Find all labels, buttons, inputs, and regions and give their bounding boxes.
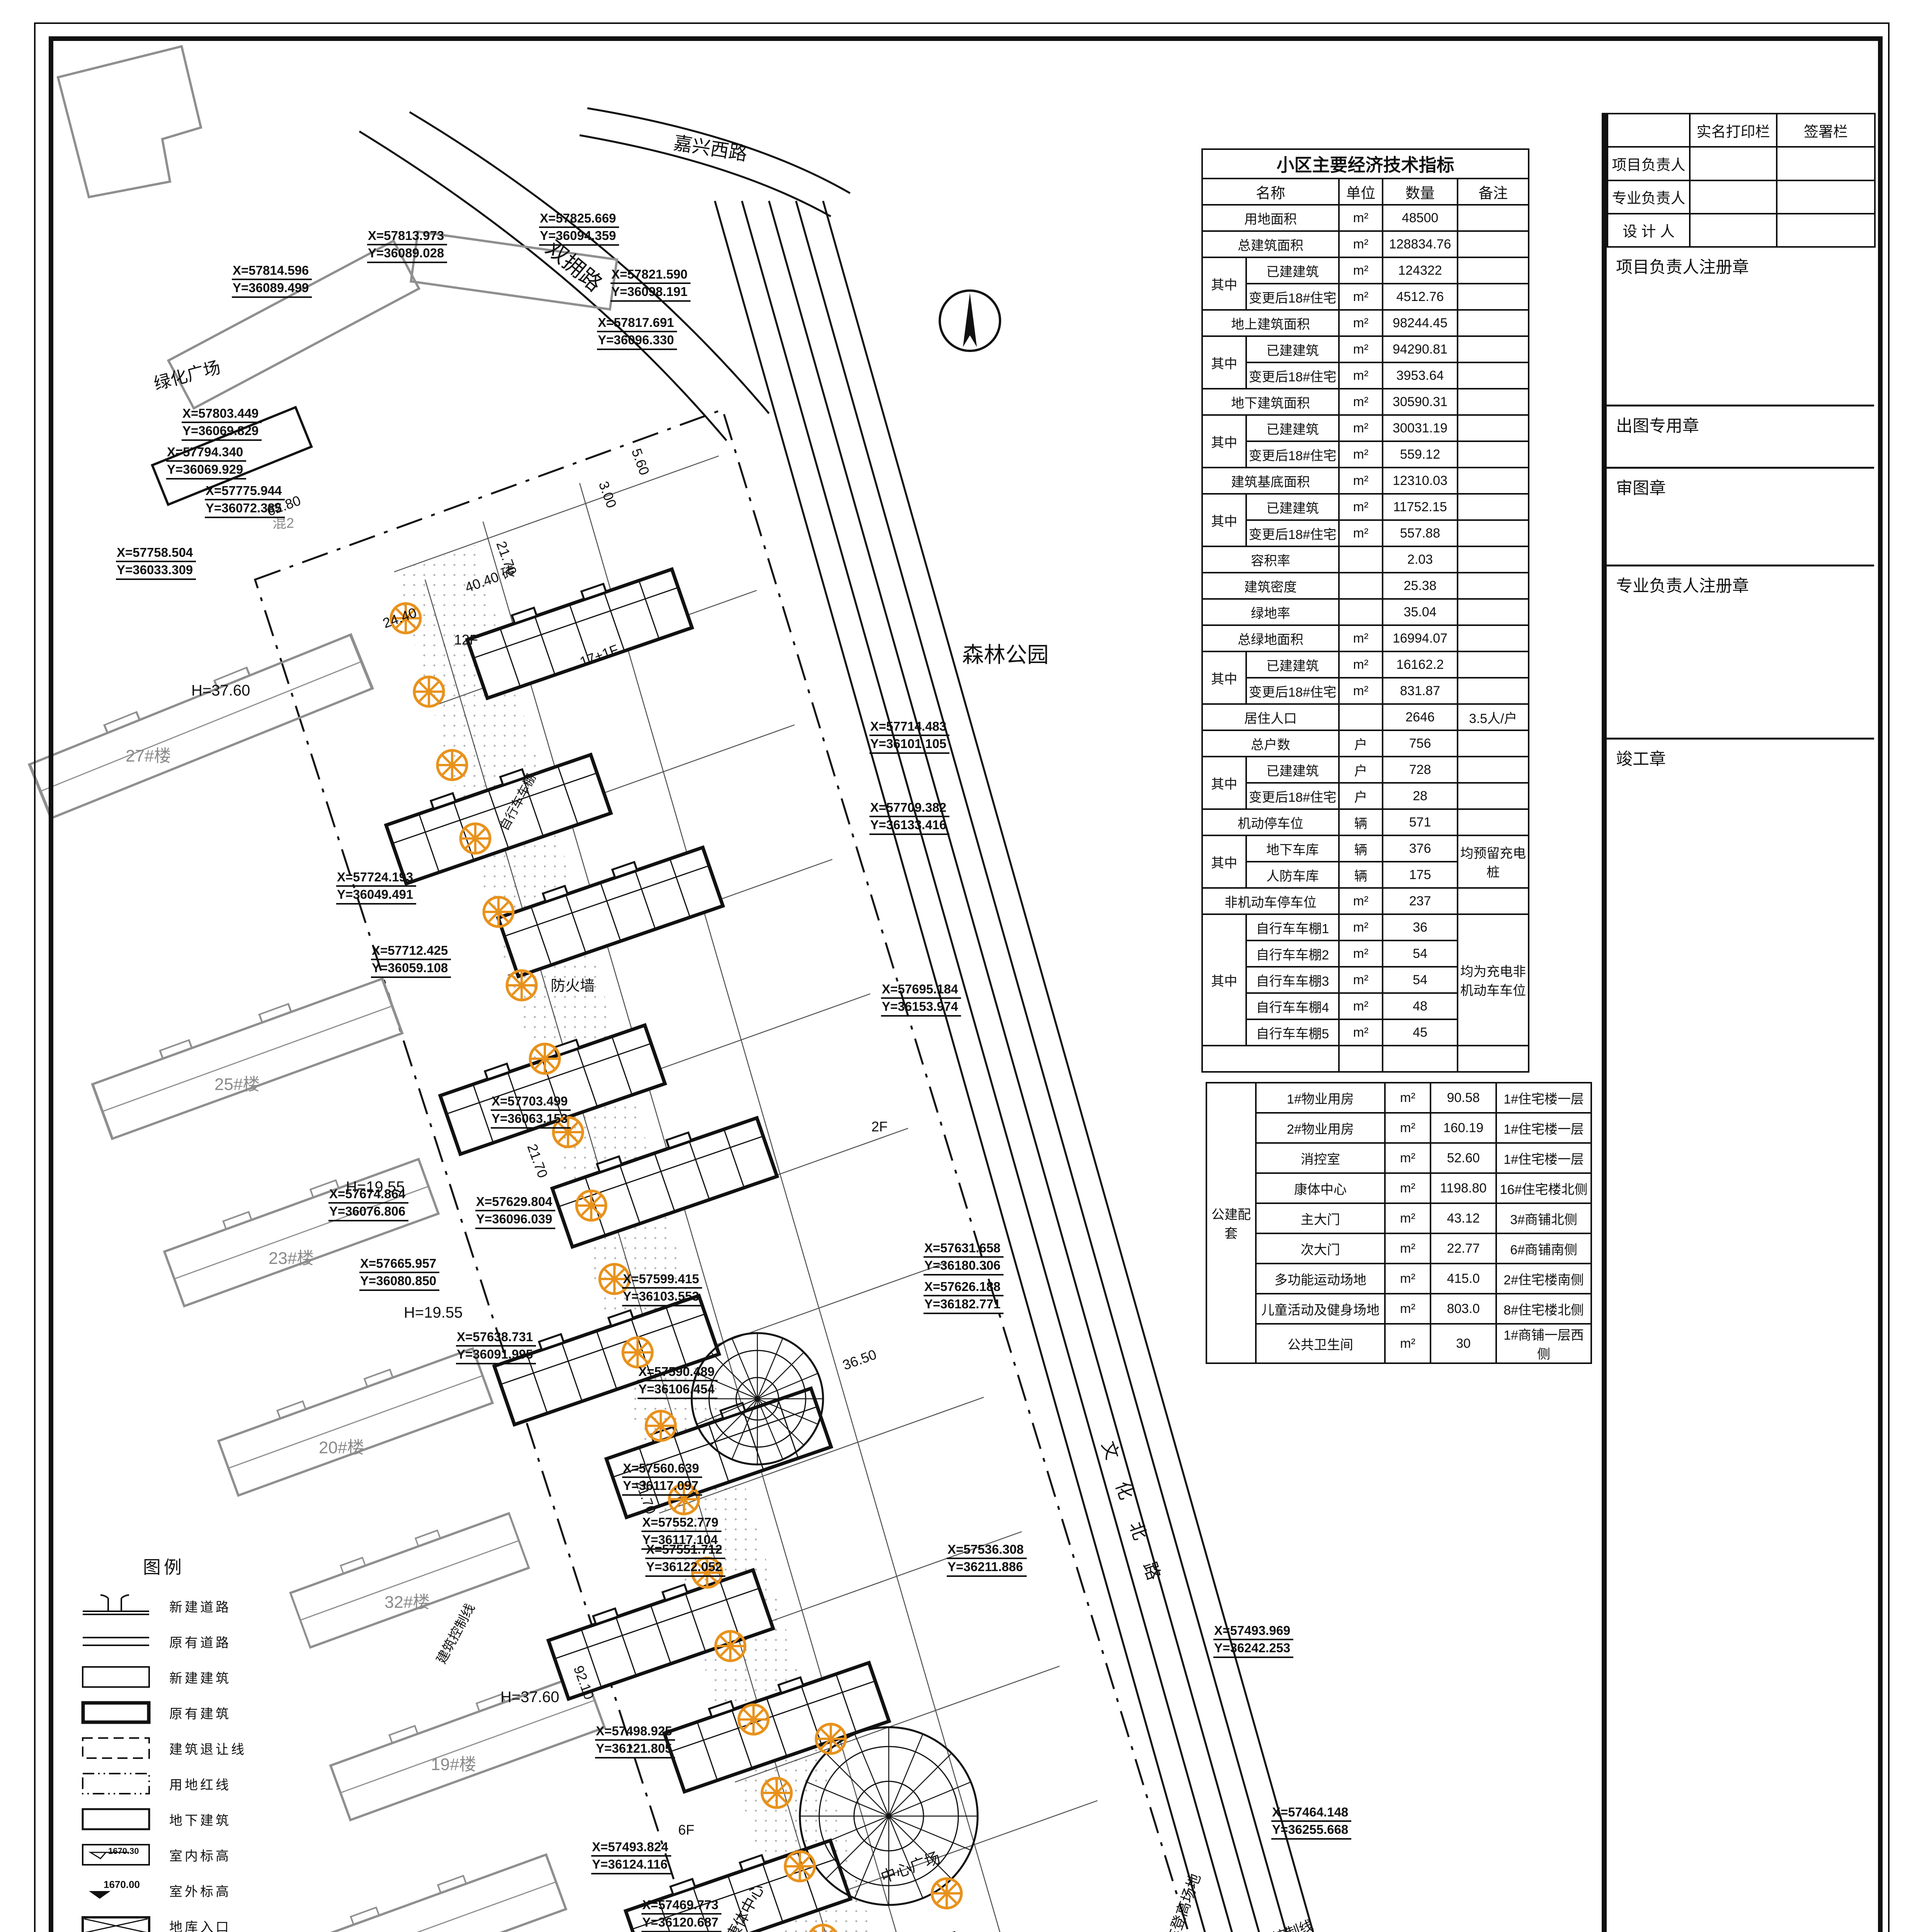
economic-table-cell: 自行车车棚5 (1246, 1019, 1339, 1046)
coordinate-y: Y=36122.052 (645, 1559, 725, 1577)
support-table-cell: 8#住宅楼北侧 (1496, 1294, 1591, 1324)
economic-table-row: 其中已建建筑m²16162.2 (1202, 651, 1529, 678)
support-table-cell: 1#物业用房 (1256, 1083, 1385, 1113)
coordinate-callout: X=57464.148Y=36255.668 (1271, 1804, 1351, 1840)
signature-table-cell: 实名打印栏 (1690, 114, 1777, 147)
economic-table-row: 变更后18#住宅m²559.12 (1202, 441, 1529, 468)
support-table-cell: 803.0 (1431, 1294, 1496, 1324)
economic-table-cell: 其中 (1202, 415, 1246, 468)
economic-table-cell: 单位 (1339, 179, 1383, 205)
economic-table-cell (1458, 625, 1529, 651)
economic-table-cell: 总户数 (1202, 730, 1339, 757)
economic-table-cell: 户 (1339, 783, 1383, 809)
coordinate-x: X=57803.449 (182, 406, 262, 423)
coordinate-x: X=57626.188 (924, 1279, 1004, 1296)
economic-table-cell (1339, 599, 1383, 625)
support-table-cell: 52.60 (1431, 1143, 1496, 1173)
economic-table-cell (1458, 1046, 1529, 1072)
support-table-cell: 43.12 (1431, 1203, 1496, 1233)
economic-table-row: 变更后18#住宅m²4512.76 (1202, 284, 1529, 310)
economic-table-cell: 已建建筑 (1246, 257, 1339, 284)
economic-table-cell: 已建建筑 (1246, 651, 1339, 678)
economic-table-row (1202, 1046, 1529, 1072)
economic-table-cell: 2646 (1383, 704, 1458, 730)
economic-table-cell: 辆 (1339, 835, 1383, 862)
economic-table-cell (1458, 651, 1529, 678)
stamp-discipline-leader: 专业负责人注册章 (1602, 566, 1874, 740)
coordinate-y: Y=36101.105 (869, 736, 949, 753)
economic-table-cell (1458, 284, 1529, 310)
coordinate-callout: X=57813.973Y=36089.028 (367, 228, 447, 263)
economic-table-cell: m² (1339, 651, 1383, 678)
new-building-icon (77, 1665, 155, 1689)
coordinate-y: Y=36069.829 (182, 423, 262, 440)
economic-table-cell: 建筑基底面积 (1202, 468, 1339, 494)
legend-item-old-road: 原有道路 (77, 1624, 294, 1659)
coordinate-y: Y=36072.385 (205, 500, 285, 518)
legend-item-setback-line: 建筑退让线 (77, 1730, 294, 1766)
economic-table-cell: 2.03 (1383, 546, 1458, 573)
economic-table-cell (1458, 730, 1529, 757)
economic-table-cell: m² (1339, 284, 1383, 310)
support-table-cell: 儿童活动及健身场地 (1256, 1294, 1385, 1324)
coordinate-callout: X=57498.925Y=36121.805 (595, 1723, 675, 1759)
coordinate-y: Y=36153.974 (881, 999, 961, 1016)
economic-table-row: 地下建筑面积m²30590.31 (1202, 389, 1529, 415)
signature-table-cell (1777, 214, 1875, 247)
signature-table-row: 设 计 人 (1607, 214, 1875, 247)
coordinate-callout: X=57825.669Y=36094.359 (539, 211, 619, 246)
coordinate-callout: X=57536.308Y=36211.886 (947, 1542, 1027, 1577)
signature-table: 实名打印栏签署栏项目负责人专业负责人设 计 人 (1607, 113, 1876, 248)
plan-label: 32#楼 (384, 1588, 430, 1613)
coordinate-y: Y=36120.687 (641, 1915, 721, 1932)
coordinate-callout: X=57631.658Y=36180.306 (924, 1240, 1004, 1276)
old-building-icon (77, 1700, 155, 1725)
coordinate-x: X=57469.773 (641, 1897, 721, 1915)
support-table-cell: 160.19 (1431, 1113, 1496, 1143)
economic-table-cell: 已建建筑 (1246, 415, 1339, 441)
economic-table-row: 总建筑面积m²128834.76 (1202, 231, 1529, 257)
economic-table-cell: 其中 (1202, 257, 1246, 310)
svg-text:1670.30: 1670.30 (108, 1846, 139, 1856)
economic-table-cell: 30031.19 (1383, 415, 1458, 441)
economic-table-row: 其中地下车库辆376均预留充电桩 (1202, 835, 1529, 862)
economic-table-cell: 28 (1383, 783, 1458, 809)
economic-table-cell: m² (1339, 336, 1383, 362)
economic-table-row: 建筑密度25.38 (1202, 573, 1529, 599)
support-table-row: 多功能运动场地m²415.02#住宅楼南侧 (1206, 1264, 1591, 1294)
signature-table-cell: 设 计 人 (1607, 214, 1690, 247)
support-table-cell: 90.58 (1431, 1083, 1496, 1113)
economic-table-cell: 已建建筑 (1246, 336, 1339, 362)
support-table-cell: 3#商铺北侧 (1496, 1203, 1591, 1233)
plan-label: H=37.60 (500, 1689, 559, 1706)
economic-table-cell: m² (1339, 494, 1383, 520)
coordinate-callout: X=57817.691Y=36096.330 (597, 315, 677, 350)
economic-table-row: 变更后18#住宅户28 (1202, 783, 1529, 809)
setback-line-icon (77, 1736, 155, 1760)
economic-table-cell: 54 (1383, 967, 1458, 993)
coordinate-callout: X=57775.944Y=36072.385 (205, 483, 285, 518)
economic-table-row: 变更后18#住宅m²3953.64 (1202, 362, 1529, 389)
coordinate-x: X=57712.425 (371, 943, 451, 960)
support-table-row: 次大门m²22.776#商铺南侧 (1206, 1233, 1591, 1264)
economic-table-cell: 名称 (1202, 179, 1339, 205)
support-table-row: 公建配套1#物业用房m²90.581#住宅楼一层 (1206, 1083, 1591, 1113)
support-table-cell: 主大门 (1256, 1203, 1385, 1233)
coordinate-x: X=57794.340 (166, 444, 246, 462)
economic-table-cell (1458, 441, 1529, 468)
economic-table-cell: 自行车车棚3 (1246, 967, 1339, 993)
economic-table-cell: 16994.07 (1383, 625, 1458, 651)
support-table-row: 主大门m²43.123#商铺北侧 (1206, 1203, 1591, 1233)
economic-table-cell: 用地面积 (1202, 205, 1339, 231)
plan-label: 23#楼 (269, 1244, 314, 1269)
economic-table-cell: 98244.45 (1383, 310, 1458, 336)
coordinate-x: X=57551.712 (645, 1542, 725, 1559)
economic-table-cell (1458, 809, 1529, 835)
indoor-level-icon: 1670.30 (77, 1842, 155, 1867)
legend-item-outdoor-level: 1670.00 室外标高 (77, 1872, 294, 1908)
coordinate-y: Y=36076.806 (328, 1204, 408, 1221)
coordinate-callout: X=57709.382Y=36133.416 (869, 800, 949, 835)
coordinate-callout: X=57703.499Y=36063.153 (491, 1094, 571, 1129)
coordinate-x: X=57638.731 (456, 1329, 536, 1347)
support-table-cell: 415.0 (1431, 1264, 1496, 1294)
economic-table-cell: 变更后18#住宅 (1246, 441, 1339, 468)
economic-table-cell: 831.87 (1383, 678, 1458, 704)
coordinate-x: X=57814.596 (232, 263, 312, 280)
economic-table-cell: 128834.76 (1383, 231, 1458, 257)
support-table-cell: m² (1385, 1233, 1431, 1264)
support-table-row: 康体中心m²1198.8016#住宅楼北侧 (1206, 1173, 1591, 1203)
economic-table-row: 其中自行车车棚1m²36均为充电非机动车车位 (1202, 914, 1529, 940)
coordinate-x: X=57464.148 (1271, 1804, 1351, 1822)
support-table-cell: 多功能运动场地 (1256, 1264, 1385, 1294)
plan-label: H=19.55 (404, 1304, 463, 1321)
coordinate-callout: X=57599.415Y=36103.553 (622, 1271, 702, 1306)
economic-table-row: 其中已建建筑m²94290.81 (1202, 336, 1529, 362)
coordinate-y: Y=36089.028 (367, 245, 447, 263)
coordinate-callout: X=57712.425Y=36059.108 (371, 943, 451, 978)
economic-table-cell: 变更后18#住宅 (1246, 520, 1339, 546)
economic-table-cell (1458, 468, 1529, 494)
economic-table-cell: 其中 (1202, 336, 1246, 389)
coordinate-x: X=57817.691 (597, 315, 677, 332)
economic-table-cell (1339, 1046, 1383, 1072)
economic-table-cell (1458, 573, 1529, 599)
economic-table-cell: 居住人口 (1202, 704, 1339, 730)
economic-table-cell: 175 (1383, 862, 1458, 888)
coordinate-x: X=57493.824 (591, 1839, 671, 1857)
economic-table-cell: 地下车库 (1246, 835, 1339, 862)
support-table-cell: 16#住宅楼北侧 (1496, 1173, 1591, 1203)
economic-table-cell: m² (1339, 940, 1383, 967)
legend-item-new-road: 新建道路 (77, 1588, 294, 1624)
coordinate-x: X=57536.308 (947, 1542, 1027, 1559)
plan-label: 防火墙 (551, 974, 595, 995)
economic-table-row: 容积率2.03 (1202, 546, 1529, 573)
economic-table-cell: 45 (1383, 1019, 1458, 1046)
support-table-cell: m² (1385, 1294, 1431, 1324)
coordinate-y: Y=36080.850 (359, 1273, 439, 1291)
coordinate-x: X=57665.957 (359, 1256, 439, 1273)
legend-item-old-building: 原有建筑 (77, 1695, 294, 1730)
economic-table-cell (1339, 573, 1383, 599)
economic-table-cell: m² (1339, 678, 1383, 704)
support-table-cell: 消控室 (1256, 1143, 1385, 1173)
economic-table-cell: 备注 (1458, 179, 1529, 205)
economic-table-cell (1458, 599, 1529, 625)
red-line-icon (77, 1771, 155, 1796)
coordinate-callout: X=57695.184Y=36153.974 (881, 981, 961, 1017)
support-table-row: 消控室m²52.601#住宅楼一层 (1206, 1143, 1591, 1173)
signature-table-cell: 项目负责人 (1607, 147, 1690, 180)
economic-table-row: 变更后18#住宅m²831.87 (1202, 678, 1529, 704)
plan-label: 25#楼 (214, 1070, 260, 1095)
coordinate-x: X=57674.864 (328, 1186, 408, 1204)
coordinate-y: Y=36096.039 (475, 1211, 555, 1229)
coordinate-callout: X=57629.804Y=36096.039 (475, 1194, 555, 1229)
signature-table-cell (1690, 214, 1777, 247)
economic-table-cell: m² (1339, 888, 1383, 914)
support-table-cell: 22.77 (1431, 1233, 1496, 1264)
drawing-sheet: 小区主要经济技术指标 名称单位数量备注用地面积m²48500总建筑面积m²128… (0, 0, 1917, 1932)
stamp-completion: 竣工章 (1602, 740, 1874, 1932)
coordinate-x: X=57599.415 (622, 1271, 702, 1289)
economic-table-row: 其中已建建筑m²124322 (1202, 257, 1529, 284)
economic-table-cell: 16162.2 (1383, 651, 1458, 678)
economic-table-cell: 48 (1383, 993, 1458, 1019)
economic-table-cell: m² (1339, 257, 1383, 284)
signature-table-cell (1777, 147, 1875, 180)
coordinate-y: Y=36180.306 (924, 1258, 1004, 1275)
economic-table-cell: m² (1339, 389, 1383, 415)
coordinate-y: Y=36063.153 (491, 1111, 571, 1128)
economic-table-cell (1458, 757, 1529, 783)
economic-table-cell: 571 (1383, 809, 1458, 835)
economic-table-cell: 其中 (1202, 835, 1246, 888)
coordinate-x: X=57813.973 (367, 228, 447, 245)
legend-item-underground: 地下建筑 (77, 1801, 294, 1837)
economic-table-cell: m² (1339, 967, 1383, 993)
signature-table-row: 实名打印栏签署栏 (1607, 114, 1875, 147)
coordinate-x: X=57724.193 (336, 869, 416, 887)
economic-table-cell: 绿地率 (1202, 599, 1339, 625)
support-table-cell: m² (1385, 1324, 1431, 1363)
economic-table-cell (1339, 704, 1383, 730)
economic-table-cell: 376 (1383, 835, 1458, 862)
support-table-cell: m² (1385, 1143, 1431, 1173)
economic-table-cell: 数量 (1383, 179, 1458, 205)
economic-table-cell (1458, 415, 1529, 441)
coordinate-y: Y=36124.116 (591, 1857, 671, 1874)
coordinate-x: X=57821.590 (611, 267, 691, 284)
economic-table-cell (1458, 888, 1529, 914)
legend-item-garage-entry: 地库入口 (77, 1908, 294, 1932)
coordinate-x: X=57714.483 (869, 719, 949, 736)
economic-table-cell: m² (1339, 231, 1383, 257)
coordinate-callout: X=57493.824Y=36124.116 (591, 1839, 671, 1874)
coordinate-y: Y=36106.454 (638, 1381, 718, 1399)
economic-table-cell (1458, 520, 1529, 546)
legend: 图例 新建道路 原有道路 新建建筑 原有建筑 (77, 1553, 294, 1932)
support-table-cell: 公共卫生间 (1256, 1324, 1385, 1363)
economic-table-cell: 地上建筑面积 (1202, 310, 1339, 336)
coordinate-y: Y=36211.886 (947, 1559, 1027, 1577)
economic-table-cell: 48500 (1383, 205, 1458, 231)
signature-table-row: 项目负责人 (1607, 147, 1875, 180)
plan-label: 20#楼 (319, 1434, 364, 1458)
economic-table-cell: 3.5人/户 (1458, 704, 1529, 730)
coordinate-callout: X=57714.483Y=36101.105 (869, 719, 949, 754)
signature-table-box: 实名打印栏签署栏项目负责人专业负责人设 计 人 (1602, 113, 1874, 248)
economic-table-cell: 其中 (1202, 651, 1246, 704)
economic-table-cell: 已建建筑 (1246, 494, 1339, 520)
support-table-cell: m² (1385, 1083, 1431, 1113)
support-table-cell: 6#商铺南侧 (1496, 1233, 1591, 1264)
coordinate-x: X=57552.779 (641, 1515, 721, 1532)
economic-table-cell: 3953.64 (1383, 362, 1458, 389)
plan-label: H=37.60 (191, 682, 250, 699)
economic-table-cell (1202, 1046, 1339, 1072)
economic-table-title: 小区主要经济技术指标 (1202, 149, 1529, 179)
economic-table-row: 地上建筑面积m²98244.45 (1202, 310, 1529, 336)
coordinate-y: Y=36094.359 (539, 228, 619, 245)
support-table-cell: 2#物业用房 (1256, 1113, 1385, 1143)
economic-table-cell (1458, 494, 1529, 520)
stamp-review: 审图章 (1602, 469, 1874, 566)
plan-label: 19#楼 (431, 1750, 476, 1775)
coordinate-x: X=57775.944 (205, 483, 285, 500)
support-table-row: 公共卫生间m²301#商铺一层西侧 (1206, 1324, 1591, 1363)
coordinate-callout: X=57794.340Y=36069.929 (166, 444, 246, 480)
economic-table-cell: 557.88 (1383, 520, 1458, 546)
coordinate-x: X=57629.804 (475, 1194, 555, 1211)
coordinate-x: X=57498.925 (595, 1723, 675, 1741)
stamp-project-leader: 项目负责人注册章 (1602, 248, 1874, 406)
economic-table-cell: 变更后18#住宅 (1246, 783, 1339, 809)
economic-table-cell: m² (1339, 468, 1383, 494)
coordinate-y: Y=36069.929 (166, 462, 246, 479)
support-table-cell: 康体中心 (1256, 1173, 1385, 1203)
economic-table-cell: 559.12 (1383, 441, 1458, 468)
coordinate-y: Y=36059.108 (371, 960, 451, 978)
economic-table-cell: m² (1339, 1019, 1383, 1046)
economic-table-cell: 总建筑面积 (1202, 231, 1339, 257)
economic-table-cell: 已建建筑 (1246, 757, 1339, 783)
coordinate-callout: X=57493.969Y=36242.253 (1213, 1623, 1293, 1658)
stamp-issue: 出图专用章 (1602, 406, 1874, 469)
economic-table-row: 用地面积m²48500 (1202, 205, 1529, 231)
coordinate-callout: X=57638.731Y=36091.995 (456, 1329, 536, 1364)
plan-label: 森林公园 (962, 638, 1049, 669)
coordinate-callout: X=57590.489Y=36106.454 (638, 1364, 718, 1399)
legend-title: 图例 (143, 1553, 294, 1579)
old-road-icon (77, 1634, 155, 1649)
economic-table-row: 非机动车停车位m²237 (1202, 888, 1529, 914)
coordinate-y: Y=36049.491 (336, 887, 416, 904)
economic-table-cell: 其中 (1202, 494, 1246, 546)
economic-table-row: 变更后18#住宅m²557.88 (1202, 520, 1529, 546)
economic-table-row: 居住人口26463.5人/户 (1202, 704, 1529, 730)
page: { "econ": { "title": "小区主要经济技术指标", "rows… (0, 0, 1917, 1932)
economic-table-row: 总户数户756 (1202, 730, 1529, 757)
economic-table-cell: 非机动车停车位 (1202, 888, 1339, 914)
economic-table-cell: m² (1339, 362, 1383, 389)
economic-table-cell: 地下建筑面积 (1202, 389, 1339, 415)
coordinate-x: X=57758.504 (116, 545, 196, 562)
economic-table-cell: 30590.31 (1383, 389, 1458, 415)
economic-table-cell: 变更后18#住宅 (1246, 284, 1339, 310)
coordinate-y: Y=36098.191 (611, 284, 691, 301)
legend-item-indoor-level: 1670.30 室内标高 (77, 1837, 294, 1872)
support-table-cell: m² (1385, 1173, 1431, 1203)
economic-table-cell: 变更后18#住宅 (1246, 362, 1339, 389)
economic-table-row: 其中已建建筑户728 (1202, 757, 1529, 783)
coordinate-y: Y=36121.805 (595, 1741, 675, 1758)
economic-indicators-table: 小区主要经济技术指标 名称单位数量备注用地面积m²48500总建筑面积m²128… (1201, 148, 1529, 1073)
economic-table-row: 其中已建建筑m²11752.15 (1202, 494, 1529, 520)
coordinate-x: X=57703.499 (491, 1094, 571, 1111)
plan-label: 27#楼 (126, 742, 171, 767)
coordinate-x: X=57631.658 (924, 1240, 1004, 1258)
economic-table-cell: 4512.76 (1383, 284, 1458, 310)
economic-table-cell: 均预留充电桩 (1458, 835, 1529, 888)
economic-table-cell: 237 (1383, 888, 1458, 914)
coordinate-callout: X=57814.596Y=36089.499 (232, 263, 312, 298)
coordinate-callout: X=57803.449Y=36069.829 (182, 406, 262, 441)
legend-item-red-line: 用地红线 (77, 1766, 294, 1801)
support-table-cell: m² (1385, 1203, 1431, 1233)
economic-table-cell: 自行车车棚2 (1246, 940, 1339, 967)
economic-table-cell: m² (1339, 520, 1383, 546)
signature-table-cell (1777, 180, 1875, 214)
signature-table-row: 专业负责人 (1607, 180, 1875, 214)
economic-table-row: 建筑基底面积m²12310.03 (1202, 468, 1529, 494)
coordinate-y: Y=36091.995 (456, 1347, 536, 1364)
signature-table-cell (1690, 147, 1777, 180)
economic-table-cell: 自行车车棚1 (1246, 914, 1339, 940)
economic-table-cell: 辆 (1339, 809, 1383, 835)
plan-label: 6F (678, 1822, 694, 1838)
economic-table-cell: 其中 (1202, 757, 1246, 809)
economic-table-cell: 12310.03 (1383, 468, 1458, 494)
legend-item-new-building: 新建建筑 (77, 1659, 294, 1695)
economic-table-cell: 36 (1383, 914, 1458, 940)
support-table-cell: m² (1385, 1113, 1431, 1143)
economic-table-cell (1458, 362, 1529, 389)
plan-label: 12F (454, 632, 478, 648)
economic-table-cell: 94290.81 (1383, 336, 1458, 362)
coordinate-x: X=57695.184 (881, 981, 961, 999)
underground-building-icon (77, 1807, 155, 1832)
economic-table-cell: 756 (1383, 730, 1458, 757)
plan-label: 2F (871, 1119, 888, 1135)
economic-table-cell: 728 (1383, 757, 1458, 783)
signature-table-cell: 签署栏 (1777, 114, 1875, 147)
economic-table-cell (1458, 678, 1529, 704)
economic-table-cell (1458, 257, 1529, 284)
support-table-cell: 2#住宅楼南侧 (1496, 1264, 1591, 1294)
outdoor-level-icon: 1670.00 (77, 1878, 155, 1903)
economic-table-row: 名称单位数量备注 (1202, 179, 1529, 205)
economic-table-row: 机动停车位辆571 (1202, 809, 1529, 835)
coordinate-y: Y=36133.416 (869, 817, 949, 835)
economic-table-cell: 户 (1339, 757, 1383, 783)
economic-table-cell: 自行车车棚4 (1246, 993, 1339, 1019)
